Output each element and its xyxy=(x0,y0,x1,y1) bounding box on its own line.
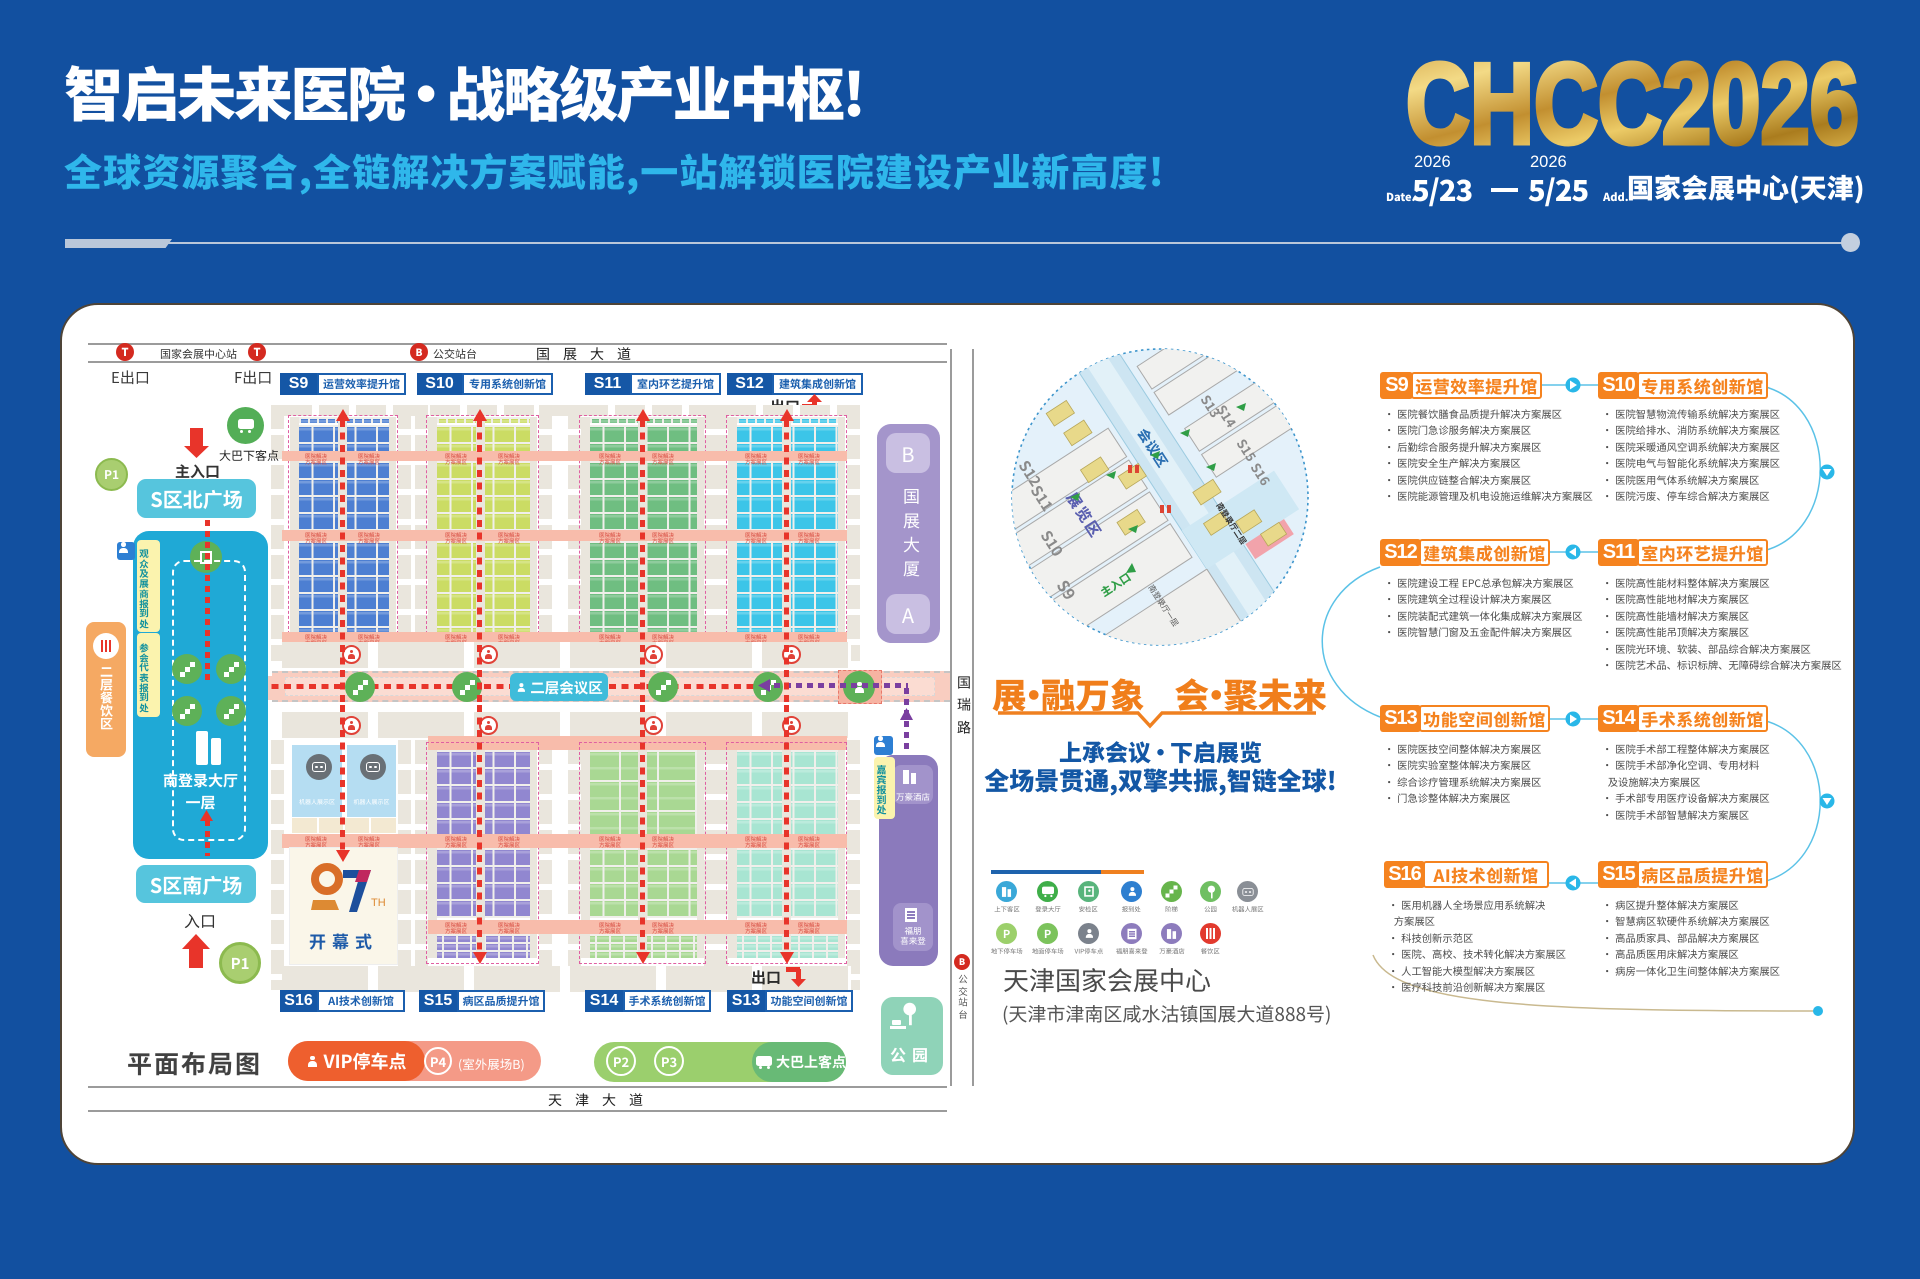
svg-text:TH: TH xyxy=(371,897,385,909)
svg-text:CHCC2026: CHCC2026 xyxy=(1406,55,1859,155)
